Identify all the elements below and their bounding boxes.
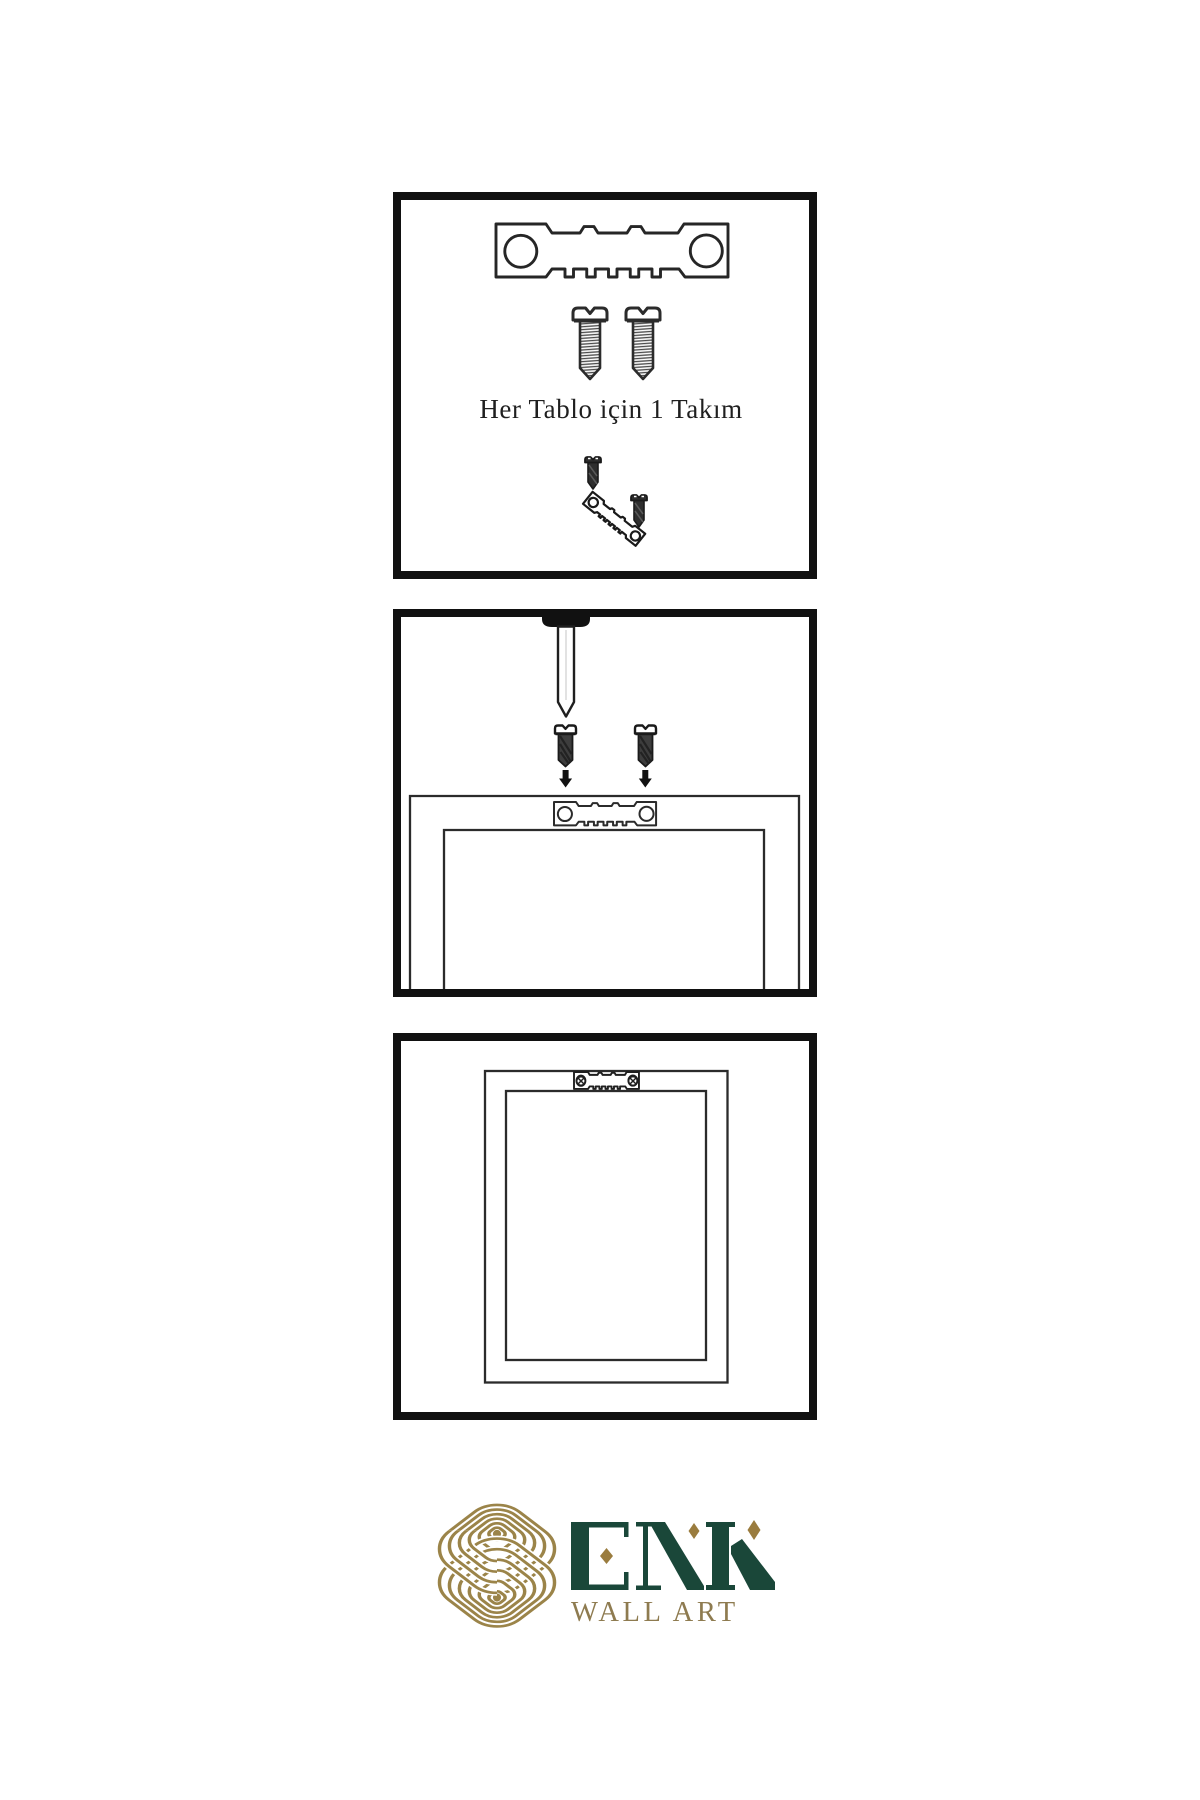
svg-text:Her Tablo için 1 Takım: Her Tablo için 1 Takım	[479, 394, 742, 424]
svg-text:WALL ART: WALL ART	[571, 1597, 739, 1628]
